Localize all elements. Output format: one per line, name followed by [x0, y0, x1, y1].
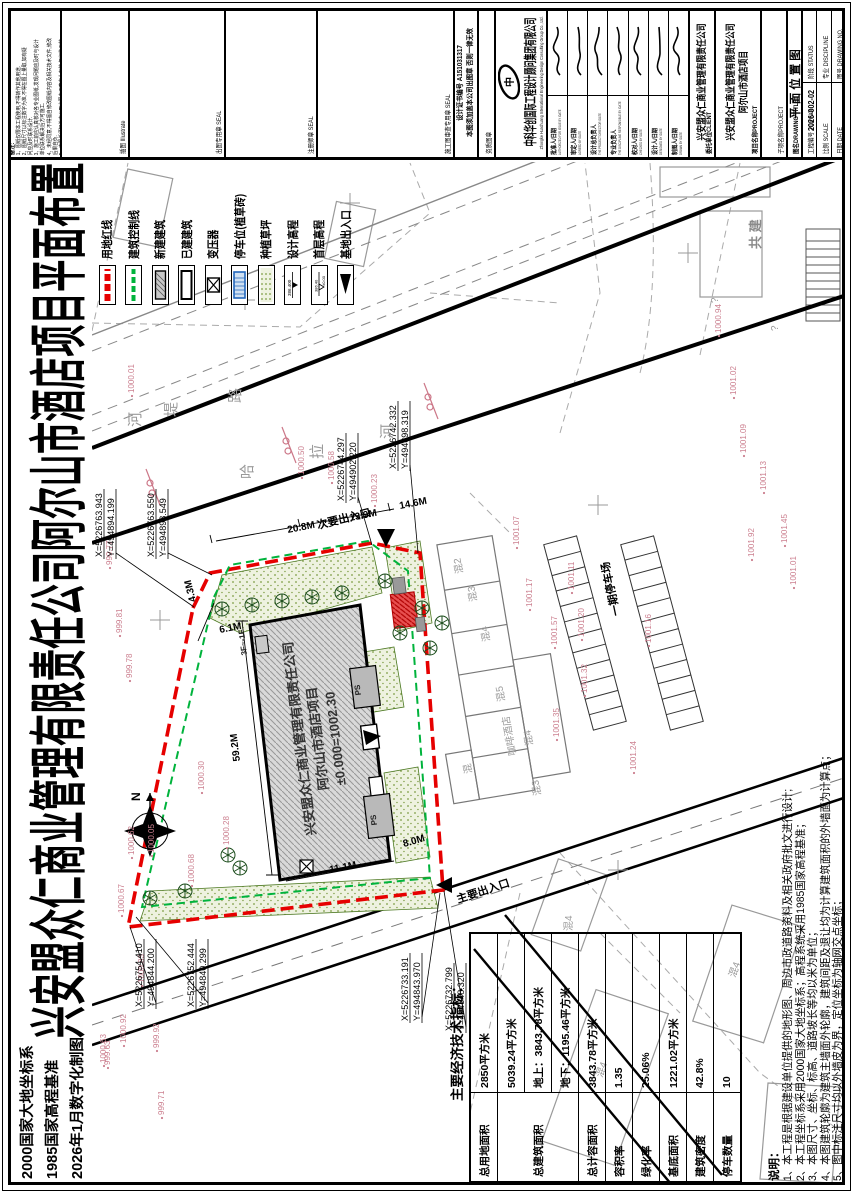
svg-text:999.81: 999.81 [115, 608, 124, 633]
job-no-cell: 工程编号 JOB NO. 2026-002-02 [803, 83, 817, 157]
note-line: 1、本工程是根据建设单位提供的地形图、周边市政道路资料及相关政府批文进行设计; [782, 528, 795, 1181]
date-label: 日期 DATE [834, 127, 844, 154]
company-name-en: Zhongke Huachuang International Engineer… [539, 16, 544, 149]
number-grid: 工程编号 JOB NO. 2026-002-02 比例 SCALE 日期 DAT… [803, 8, 845, 157]
personnel-role-en: AGREED BY /DATE [578, 111, 582, 155]
personnel-role: 制图人/日期 [670, 105, 679, 155]
seal-cell-3: 施工图审查专用章 SEAL [318, 8, 455, 157]
design-elev-icon: 386.400 [284, 265, 301, 305]
svg-text:1000.30: 1000.30 [197, 761, 206, 790]
svg-text:20.8M: 20.8M [286, 520, 315, 536]
oldbld-icon [178, 265, 195, 305]
legend-item: 386.400设计高程 [280, 182, 307, 305]
svg-text:Y=494898.319: Y=494898.319 [400, 410, 410, 469]
svg-text:1001.02: 1001.02 [729, 366, 738, 395]
company-logo: 中 [498, 63, 520, 103]
svg-text:1000.62: 1000.62 [127, 826, 136, 855]
personnel-role-en: DESIGNED BY /DATE [659, 111, 663, 155]
econ-row-label: 停车数量 [714, 1093, 742, 1183]
svg-text:PS: PS [369, 814, 379, 826]
signature [548, 8, 567, 95]
svg-text:1000.58: 1000.58 [327, 451, 336, 480]
econ-row-value: 25.06% [633, 933, 660, 1093]
seal-cell-2: 注册师章 SEAL [226, 8, 318, 157]
svg-text:河: 河 [379, 424, 396, 439]
company-name: 中科华创国际工程设计顾问集团有限公司 [520, 18, 539, 147]
svg-text:1000.01: 1000.01 [127, 364, 136, 393]
econ-row-value: 1221.02平方米 [660, 933, 687, 1093]
legend-item: 变压器 [200, 182, 227, 305]
illustrate-cell: 插图 Illustrate [62, 8, 130, 157]
client-label: 委托单位CLIENT [703, 112, 713, 154]
discipline-cell: 专业 DISCIPLINE [817, 8, 831, 82]
entrance-icon [337, 265, 354, 305]
econ-row-value: 地上：3843.78平方米 [525, 933, 552, 1093]
svg-text:1000.50: 1000.50 [297, 446, 306, 475]
datum-line: 1985国家高程基准 [41, 1039, 66, 1179]
personnel-row: 设计人/日期DESIGNED BY /DATE [649, 8, 669, 157]
svg-text:1001.17: 1001.17 [525, 578, 534, 607]
svg-text:咖啡酒店: 咖啡酒店 [499, 715, 519, 757]
svg-text:主要出入口: 主要出入口 [455, 876, 512, 906]
svg-text:混5: 混5 [493, 685, 508, 703]
svg-text:1000.05: 1000.05 [147, 824, 156, 853]
personnel-row: 专业负责人THE DISCIPLINE RESPONSIBLE BY /DATE [608, 8, 628, 157]
svg-text:路: 路 [227, 388, 244, 403]
personnel-role: 专业负责人 [609, 105, 618, 155]
svg-text:混3: 混3 [465, 585, 480, 603]
svg-text:拉: 拉 [309, 444, 326, 459]
signature [669, 8, 688, 95]
certificate-note: 本图须加盖本公司出图章 否则一律无效 [466, 28, 476, 137]
svg-text:X=5226754.410: X=5226754.410 [134, 943, 144, 1007]
personnel-role: 设计人/日期 [650, 105, 659, 155]
seal1-label: 出图专用章 SEAL [213, 111, 223, 154]
status-label: 阶段 STATUS [805, 45, 815, 79]
signature [629, 8, 648, 95]
svg-text:河: 河 [127, 412, 144, 427]
legend-label: 用地红线 [99, 220, 115, 259]
svg-text:1000.63: 1000.63 [99, 1034, 108, 1063]
discipline-label: 专业 DISCIPLINE [820, 36, 830, 79]
svg-text:±0.00: ±0.00 [321, 275, 326, 286]
newbld-icon [152, 265, 169, 305]
job-no-value: 2026-002-02 [806, 90, 816, 131]
svg-text:1001.11: 1001.11 [567, 561, 576, 590]
svg-text:1001.92: 1001.92 [747, 528, 756, 557]
svg-text:哈: 哈 [239, 464, 256, 479]
project-label: 项目名称PROJECT [749, 106, 759, 154]
svg-text:1000.94: 1000.94 [714, 304, 723, 333]
svg-text:X=5226763.550: X=5226763.550 [146, 493, 156, 557]
project-cell: 兴安盟众仁商业管理有限责任公司 阿尔山市酒店项目 项目名称PROJECT [716, 8, 762, 157]
remarks-cell: 备注:1、图纸仅限本工程使用,不得转作其他用途.2、图纸尺寸以标注数字为准,不得… [8, 8, 62, 157]
svg-text:1001.24: 1001.24 [629, 741, 638, 770]
seal2-label: 注册师章 SEAL [305, 116, 315, 154]
legend-item: 基地出入口 [333, 182, 360, 305]
personnel-role-en: DRAWN BY /DATE [679, 111, 683, 155]
svg-text:N: N [129, 792, 143, 801]
econ-row-value: 42.8% [687, 933, 714, 1093]
grass-icon [258, 265, 275, 305]
econ-title: 主要经济技术指标： [446, 932, 466, 1101]
econ-row-value: 3843.78平方米 [579, 933, 606, 1093]
certificate-cell: 设计证书编号 A151031317 本图须加盖本公司出图章 否则一律无效 [455, 8, 479, 157]
legend-label: 停车位(植草砖) [232, 194, 248, 259]
legend-item: 386.40±0.00首层高程 [306, 182, 333, 305]
personnel-row: 设计总负责人THE PROJECT DIRECTOR /DATE [588, 8, 608, 157]
econ-row-label: 总建筑面积 [498, 1093, 579, 1183]
svg-text:Y=494894.199: Y=494894.199 [106, 498, 116, 557]
certificate-no: 设计证书编号 A151031317 [456, 45, 466, 121]
econ-row-label: 总用地面积 [470, 1093, 498, 1183]
personnel-role: 批准人/日期 [549, 105, 558, 155]
legend-label: 种植草坪 [258, 220, 274, 259]
svg-text:999.92: 999.92 [152, 1023, 161, 1048]
redline-icon [99, 265, 116, 305]
svg-text:1001.57: 1001.57 [550, 616, 559, 645]
title-block: 备注:1、图纸仅限本工程使用,不得转作其他用途.2、图纸尺寸以标注数字为准,不得… [8, 8, 845, 160]
parking-icon [231, 265, 248, 305]
date-cell: 日期 DATE [832, 83, 845, 157]
personnel-row: 审定人/日期AGREED BY /DATE [568, 8, 588, 157]
status-cell: 阶段 STATUS [803, 8, 817, 82]
datum-line: 2026年1月数字化制图 [66, 1039, 91, 1179]
econ-table: 总用地面积2850平方米总建筑面积5039.24平方米地上：3843.78平方米… [469, 932, 742, 1183]
svg-text:1001.09: 1001.09 [739, 424, 748, 453]
legend-label: 建筑控制线 [126, 210, 142, 259]
drawing-title-label: 图名DRAWING TITLE [790, 99, 800, 154]
notes-title: 说明： [769, 501, 782, 1181]
svg-text:PS: PS [353, 684, 363, 696]
company-cell: 中 中科华创国际工程设计顾问集团有限公司 Zhongke Huachuang I… [496, 8, 548, 157]
svg-text:1000.68: 1000.68 [187, 854, 196, 883]
transformer-icon [205, 265, 222, 305]
transformer-symbol [300, 860, 313, 873]
note-line: 4、本图建筑轮廓为建筑主墙面外轮廓，建筑间距及退让均为计算建筑面积的外墙面为计算… [820, 528, 833, 1181]
svg-text:1001.35: 1001.35 [552, 708, 561, 737]
svg-text:?: ? [770, 325, 781, 331]
econ-row-value: 地下：1195.46平方米 [552, 933, 579, 1093]
legend-item: 建筑控制线 [121, 182, 148, 305]
svg-text:次要出入口: 次要出入口 [315, 505, 372, 532]
econ-row-label: 容积率 [606, 1093, 633, 1183]
legend-label: 新建建筑 [152, 220, 168, 259]
note-line: 5、图中标注尺寸均以外墙皮为界，定位坐标为轴网交点坐标； [832, 528, 845, 1181]
qualification-cell: 资质图章 [479, 8, 496, 157]
signature [588, 8, 607, 95]
svg-text:1000.23: 1000.23 [370, 474, 379, 503]
scale-cell: 比例 SCALE [817, 83, 831, 157]
drawing-main-title: 兴安盟众仁商业管理有限责任公司阿尔山市酒店项目平面布置图 [12, 129, 96, 1038]
svg-text:中: 中 [503, 78, 516, 88]
scale-label: 比例 SCALE [820, 123, 830, 154]
seal3-label: 施工图审查专用章 SEAL [442, 94, 452, 154]
svg-text:14.6M: 14.6M [398, 496, 427, 512]
legend-item: 已建建筑 [174, 182, 201, 305]
illustrate-label: 插图 Illustrate [117, 121, 127, 154]
signature [649, 8, 668, 95]
svg-text:1000.28: 1000.28 [222, 816, 231, 845]
svg-text:386.40: 386.40 [313, 279, 318, 292]
note-line: 2、本工程坐标系采用2000国家大地坐标系；高程系统采用1985国家高程基准； [795, 528, 808, 1181]
dwg-no-cell: 图号 DRAWING NO. [832, 8, 845, 82]
project-line1: 兴安盟众仁商业管理有限责任公司 [725, 24, 738, 141]
drawing-title-cell: 平面位置图 图名DRAWING TITLE [788, 8, 803, 157]
floor-elev-icon: 386.40±0.00 [311, 265, 328, 305]
econ-row-value: 1.35 [606, 933, 633, 1093]
signature [568, 8, 587, 95]
econ-row-value: 2850平方米 [470, 933, 498, 1093]
econ-row-value: 10 [714, 933, 742, 1093]
project-line2: 阿尔山市酒店项目 [738, 51, 751, 113]
econ-row-label: 总计容面积 [579, 1093, 606, 1183]
svg-text:混: 混 [461, 763, 475, 775]
landscape-sheet: 999.63999.71999.77999.78999.81999.921000… [0, 0, 853, 1193]
econ-row-value: 5039.24平方米 [498, 933, 525, 1093]
svg-text:混2: 混2 [451, 557, 466, 575]
personnel-role-en: CHECKED BY /DATE [639, 111, 643, 155]
svg-text:混3: 混3 [529, 779, 544, 797]
seal-cell-1: 出图专用章 SEAL [130, 8, 226, 157]
svg-text:1001.13: 1001.13 [759, 461, 768, 490]
legend-label: 基地出入口 [338, 210, 354, 259]
svg-text:1001.32: 1001.32 [580, 664, 589, 693]
svg-text:386.400: 386.400 [287, 279, 292, 296]
legend-label: 设计高程 [285, 220, 301, 259]
personnel-role: 校对人/日期 [630, 105, 639, 155]
svg-text:Y=494898.549: Y=494898.549 [158, 498, 168, 557]
personnel-role: 审定人/日期 [569, 105, 578, 155]
svg-text:999.71: 999.71 [157, 1090, 166, 1115]
personnel-role-en: AUTHORIZED FOR ISSUE BY /DATE [558, 111, 562, 155]
svg-text:4.3M: 4.3M [183, 579, 199, 603]
personnel-cell: 批准人/日期AUTHORIZED FOR ISSUE BY /DATE审定人/日… [548, 8, 690, 157]
general-notes: 说明： 1、本工程是根据建设单位提供的地形图、周边市政道路资料及相关政府批文进行… [769, 501, 845, 1181]
svg-text:共 建: 共 建 [748, 219, 763, 249]
svg-text:X=5226744.297: X=5226744.297 [336, 437, 346, 501]
qualification-label: 资质图章 [483, 132, 493, 154]
subproject-cell: 子项名称PROJECT [762, 8, 788, 157]
legend-label: 首层高程 [311, 220, 327, 259]
svg-text:X=5226733.191: X=5226733.191 [400, 957, 410, 1021]
svg-text:1001.16: 1001.16 [644, 614, 653, 643]
svg-text:Y=494840.299: Y=494840.299 [198, 948, 208, 1007]
econ-row-label: 绿化率 [633, 1093, 660, 1183]
svg-text:一期停车场: 一期停车场 [598, 561, 623, 618]
dwg-no-label: 图号 DRAWING NO. [834, 29, 844, 79]
econ-row-label: 基底面积 [660, 1093, 687, 1183]
note-line: 3、本图尺寸、坐标、标高、道路坡长等均以米为单位； [807, 528, 820, 1181]
svg-text:999.78: 999.78 [125, 653, 134, 678]
personnel-row: 批准人/日期AUTHORIZED FOR ISSUE BY /DATE [548, 8, 568, 157]
signature [608, 8, 627, 95]
svg-text:X=5226752.444: X=5226752.444 [186, 943, 196, 1007]
legend-item: 新建建筑 [147, 182, 174, 305]
svg-text:1001.20: 1001.20 [577, 608, 586, 637]
svg-text:1001.07: 1001.07 [512, 516, 521, 545]
svg-text:混4: 混4 [563, 915, 575, 931]
svg-text:堤: 堤 [163, 402, 180, 417]
svg-text:59.2M: 59.2M [229, 733, 243, 762]
client-cell: 兴安盟众仁商业管理有限责任公司 委托单位CLIENT [690, 8, 716, 157]
legend-label: 变压器 [205, 230, 221, 259]
svg-text:Y=494843.970: Y=494843.970 [412, 962, 422, 1021]
svg-text:3F~-1F: 3F~-1F [237, 629, 249, 656]
econ-row-label: 建筑密度 [687, 1093, 714, 1183]
subproject-label: 子项名称PROJECT [775, 106, 785, 154]
legend: 用地红线建筑控制线新建建筑已建建筑变压器停车位(植草砖)种植草坪386.400设… [94, 182, 359, 305]
svg-text:?: ? [710, 297, 721, 303]
drawing-sheet: 999.63999.71999.77999.78999.81999.921000… [0, 0, 853, 1193]
personnel-row: 校对人/日期CHECKED BY /DATE [629, 8, 649, 157]
legend-item: 停车位(植草砖) [227, 182, 254, 305]
legend-label: 已建建筑 [179, 220, 195, 259]
personnel-role-en: THE DISCIPLINE RESPONSIBLE BY /DATE [618, 111, 622, 155]
personnel-role-en: THE PROJECT DIRECTOR /DATE [598, 111, 602, 155]
svg-text:1000.92: 1000.92 [119, 1014, 128, 1043]
svg-text:1000.67: 1000.67 [117, 884, 126, 913]
personnel-role: 设计总负责人 [589, 105, 598, 155]
economic-indicators: 主要经济技术指标： 总用地面积2850平方米总建筑面积5039.24平方米地上：… [446, 932, 742, 1183]
personnel-row: 制图人/日期DRAWN BY /DATE [669, 8, 688, 157]
svg-text:混4: 混4 [521, 729, 536, 747]
datum-note: 2000国家大地坐标系 1985国家高程基准 2026年1月数字化制图 [16, 1039, 91, 1179]
legend-item: 种植草坪 [253, 182, 280, 305]
greenline-icon [125, 265, 142, 305]
svg-text:Y=494902.220: Y=494902.220 [348, 442, 358, 501]
datum-line: 2000国家大地坐标系 [16, 1039, 41, 1179]
svg-text:Y=494844.200: Y=494844.200 [146, 948, 156, 1007]
legend-item: 用地红线 [94, 182, 121, 305]
